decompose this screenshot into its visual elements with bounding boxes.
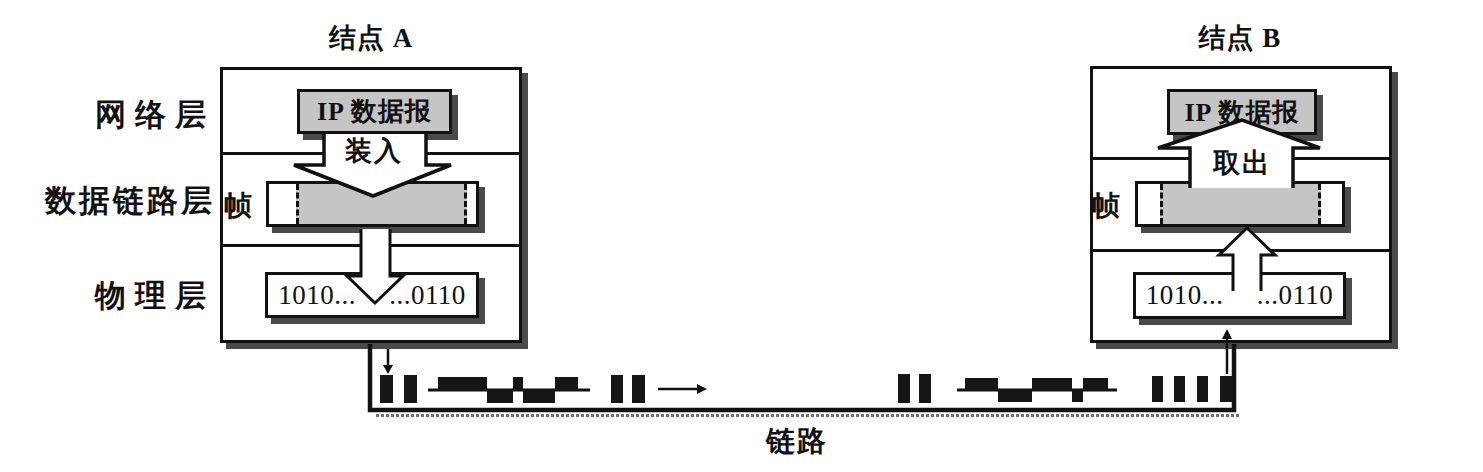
- right-bit-pulses: [898, 374, 1232, 403]
- link-line: [370, 344, 1234, 410]
- node-a-frame-label: 帧: [224, 187, 252, 225]
- node-a-transmit-arrowhead: [383, 365, 393, 374]
- node-a-layer-divider-2: [223, 244, 519, 247]
- node-a-title: 结点 A: [271, 20, 471, 56]
- node-a-frame-payload: [296, 184, 467, 224]
- label-datalink-layer: 数据链路层: [35, 180, 215, 222]
- left-bit-pulses: [380, 375, 645, 403]
- node-a-ip-datagram-box: IP 数据报: [297, 89, 452, 134]
- label-network-layer: 网络层: [35, 94, 215, 136]
- link-direction-arrowhead: [697, 384, 707, 394]
- node-a-frame-box: [266, 181, 479, 227]
- node-b-frame-box: [1135, 181, 1345, 227]
- node-b-ip-datagram-box: IP 数据报: [1167, 89, 1317, 135]
- node-b-layer-divider-1: [1093, 157, 1389, 160]
- node-b-bits-box: 1010... ...0110: [1133, 272, 1346, 319]
- node-a-layer-divider-1: [223, 152, 519, 155]
- diagram-canvas: 网络层 数据链路层 物理层 结点 A 帧 1010... ...0110 IP …: [0, 0, 1483, 472]
- label-physical-layer: 物理层: [35, 275, 215, 317]
- left-signal-waveform: [428, 377, 590, 403]
- node-a-bits-box: 1010... ...0110: [265, 272, 479, 318]
- node-b-layer-divider-2: [1093, 249, 1389, 252]
- link-label: 链路: [742, 422, 852, 462]
- node-b-title: 结点 B: [1140, 20, 1340, 56]
- node-b-frame-payload: [1160, 184, 1321, 224]
- right-signal-waveform: [957, 378, 1117, 402]
- node-b-frame-label: 帧: [1092, 187, 1120, 225]
